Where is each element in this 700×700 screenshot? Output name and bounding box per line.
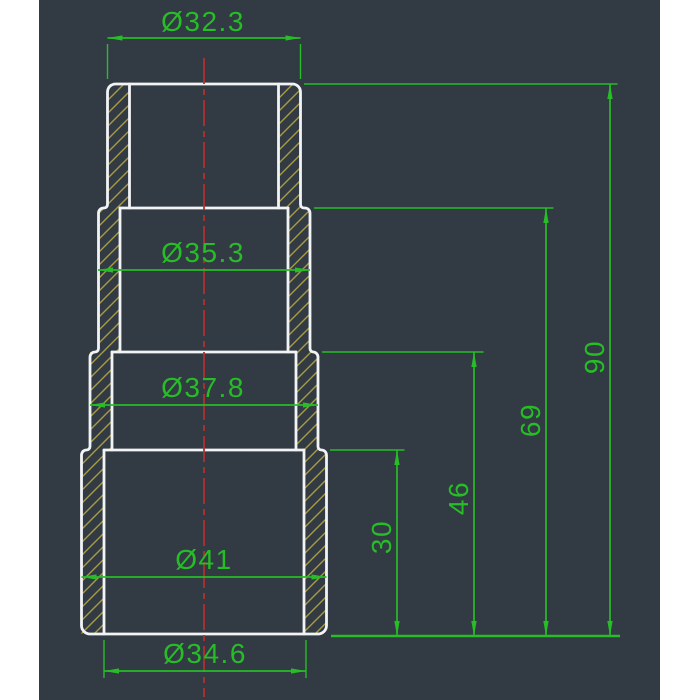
cad-screenshot: Ø32.3 Ø35.3 Ø37.8 Ø41 Ø34.6 90 69 4 bbox=[0, 0, 700, 700]
dim-label-69: 69 bbox=[515, 403, 546, 437]
dim-label-d35-3: Ø35.3 bbox=[161, 237, 245, 268]
dim-label-d32-3: Ø32.3 bbox=[161, 6, 245, 37]
drawing-background bbox=[39, 0, 660, 700]
dim-label-d34-6: Ø34.6 bbox=[163, 638, 247, 669]
dim-label-d37-8: Ø37.8 bbox=[161, 372, 245, 403]
dim-label-30: 30 bbox=[366, 520, 397, 554]
cad-canvas: Ø32.3 Ø35.3 Ø37.8 Ø41 Ø34.6 90 69 4 bbox=[0, 0, 700, 700]
dim-label-90: 90 bbox=[579, 340, 610, 374]
dim-label-46: 46 bbox=[443, 481, 474, 515]
dim-label-d41: Ø41 bbox=[175, 544, 232, 575]
